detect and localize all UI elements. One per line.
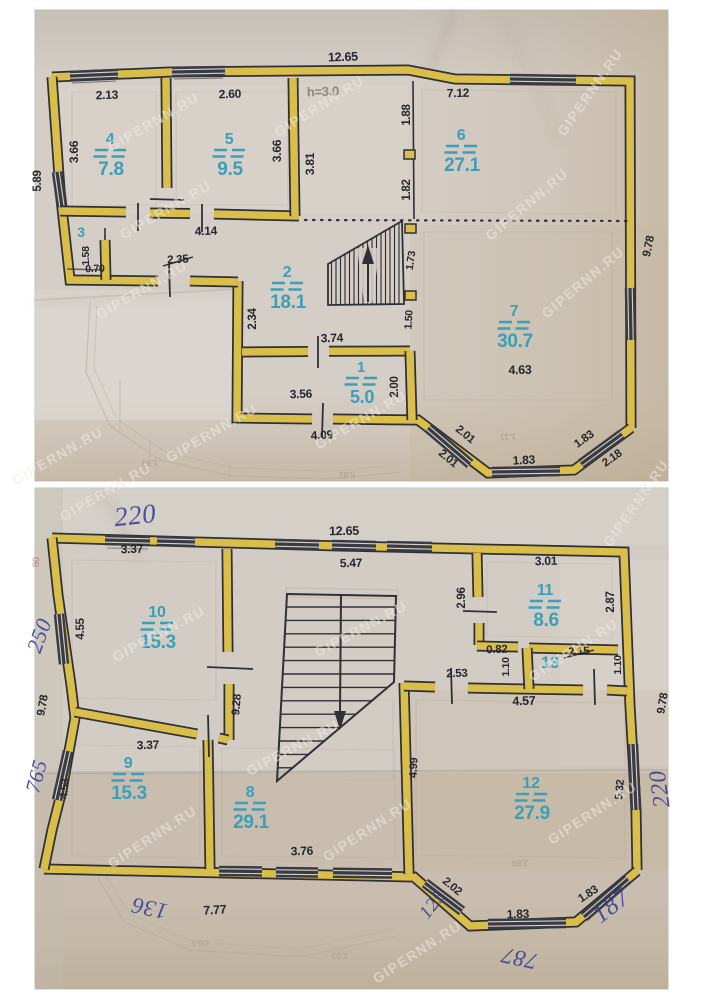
svg-text:220: 220 — [645, 769, 676, 810]
svg-text:0.70: 0.70 — [85, 263, 105, 276]
svg-text:1.50: 1.50 — [402, 309, 415, 329]
svg-text:5.81: 5.81 — [338, 470, 355, 481]
svg-text:2.89: 2.89 — [511, 858, 528, 869]
svg-text:8.6: 8.6 — [533, 610, 559, 631]
svg-text:220: 220 — [113, 498, 158, 532]
svg-text:5.47: 5.47 — [340, 556, 363, 570]
svg-text:11: 11 — [537, 582, 554, 599]
svg-text:29.1: 29.1 — [233, 812, 270, 833]
svg-text:3: 3 — [77, 224, 85, 240]
svg-text:4.63: 4.63 — [508, 363, 532, 377]
svg-text:10: 10 — [148, 604, 166, 621]
svg-text:2.87: 2.87 — [605, 591, 617, 612]
svg-text:3.74: 3.74 — [321, 331, 344, 346]
svg-text:80: 80 — [31, 557, 41, 567]
svg-text:2.53: 2.53 — [446, 668, 468, 681]
svg-text:3.37: 3.37 — [137, 738, 160, 753]
svg-text:2.13: 2.13 — [96, 88, 119, 103]
svg-text:1.83: 1.83 — [507, 907, 530, 922]
svg-text:9: 9 — [124, 755, 133, 772]
svg-text:1.11: 1.11 — [500, 432, 516, 443]
svg-text:4.14: 4.14 — [195, 224, 218, 239]
svg-text:30.7: 30.7 — [497, 331, 533, 352]
svg-text:9.5: 9.5 — [217, 159, 243, 180]
svg-text:4.55: 4.55 — [75, 618, 87, 640]
svg-text:1.82: 1.82 — [401, 179, 413, 200]
svg-text:1.03: 1.03 — [331, 951, 348, 962]
svg-text:12.65: 12.65 — [328, 49, 359, 64]
svg-text:18.1: 18.1 — [270, 292, 307, 313]
svg-text:3.81: 3.81 — [303, 152, 317, 175]
svg-text:4.99: 4.99 — [407, 757, 420, 778]
svg-text:0.82: 0.82 — [486, 644, 508, 657]
svg-text:1.83: 1.83 — [512, 452, 535, 467]
svg-text:3.66: 3.66 — [67, 140, 81, 163]
svg-text:3.37: 3.37 — [121, 542, 144, 557]
svg-text:3.01: 3.01 — [535, 554, 558, 568]
svg-text:27.1: 27.1 — [444, 155, 481, 176]
svg-text:1: 1 — [357, 359, 365, 376]
svg-text:2.60: 2.60 — [219, 87, 242, 102]
svg-text:3.56: 3.56 — [290, 387, 313, 402]
svg-text:7.8: 7.8 — [98, 159, 124, 180]
svg-text:8: 8 — [246, 784, 255, 801]
svg-text:3.66: 3.66 — [270, 139, 284, 162]
svg-text:3.76: 3.76 — [291, 844, 314, 859]
svg-text:2.34: 2.34 — [247, 308, 259, 330]
svg-text:12.65: 12.65 — [329, 524, 359, 539]
svg-text:1.10: 1.10 — [612, 655, 624, 675]
svg-text:C0.1: C0.1 — [191, 938, 209, 949]
svg-text:1.10: 1.10 — [500, 657, 512, 677]
svg-text:4.53: 4.53 — [58, 778, 71, 799]
svg-text:2.96: 2.96 — [456, 587, 468, 608]
svg-text:7: 7 — [510, 303, 519, 320]
svg-text:27.9: 27.9 — [514, 803, 550, 824]
svg-text:15.3: 15.3 — [111, 783, 147, 804]
svg-text:7.77: 7.77 — [203, 902, 227, 917]
svg-text:5: 5 — [225, 131, 234, 148]
svg-text:12: 12 — [522, 775, 540, 792]
svg-text:7.12: 7.12 — [447, 86, 470, 100]
svg-text:6: 6 — [457, 127, 466, 144]
svg-text:9.28: 9.28 — [230, 693, 244, 716]
svg-text:5.89: 5.89 — [32, 170, 44, 191]
svg-text:4.57: 4.57 — [512, 694, 536, 709]
svg-text:1.88: 1.88 — [401, 104, 413, 126]
svg-text:2: 2 — [283, 264, 292, 281]
